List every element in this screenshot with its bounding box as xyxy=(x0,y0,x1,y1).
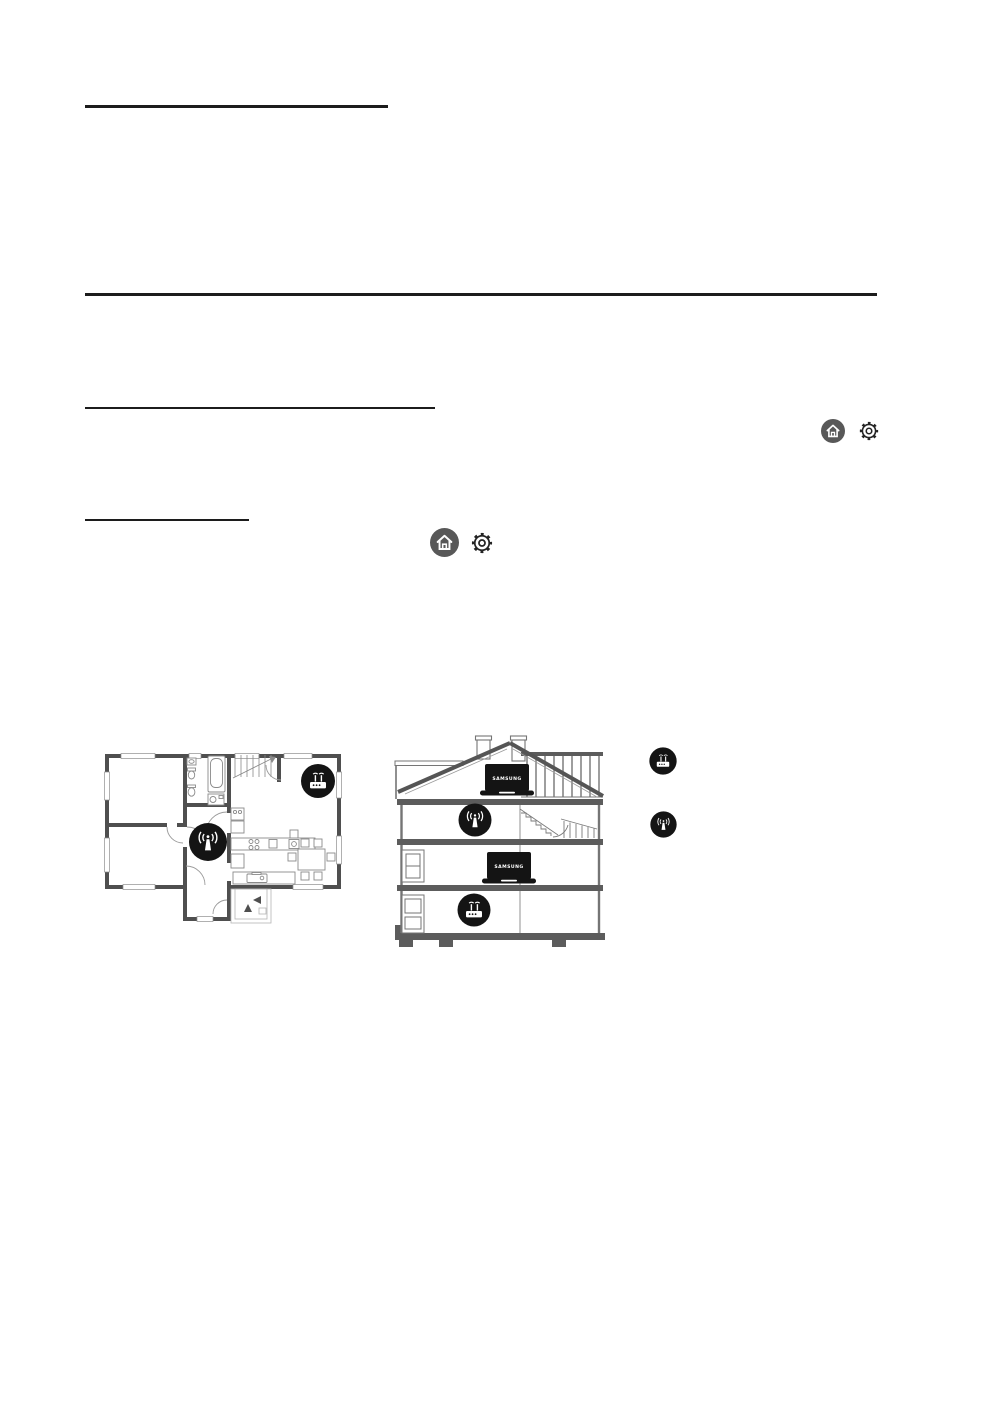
laptop-first-floor: SAMSUNG xyxy=(482,852,536,884)
wifi-extender-icon xyxy=(189,823,227,861)
stairs xyxy=(520,809,597,838)
laptop-screen-label: SAMSUNG xyxy=(492,776,521,782)
legend-wifi-extender-icon xyxy=(650,811,677,838)
heading-underline-2 xyxy=(85,407,435,409)
home-icon xyxy=(430,528,459,557)
house-cross-section-figure: SAMSUNG SAMSUNG xyxy=(393,733,607,948)
laptop-attic: SAMSUNG xyxy=(480,764,534,796)
gear-icon xyxy=(471,532,493,554)
heading-underline-1 xyxy=(85,105,388,108)
home-icon xyxy=(821,419,845,443)
section-divider-rule xyxy=(85,293,877,296)
manual-page: SAMSUNG SAMSUNG xyxy=(0,0,1001,1421)
heading-underline-3 xyxy=(85,519,249,521)
wifi-router-icon xyxy=(301,764,335,798)
floor-plan-figure xyxy=(101,750,345,925)
legend-wifi-router-icon xyxy=(649,747,677,775)
floor-plan-porch xyxy=(231,889,271,923)
cross-section-openings xyxy=(402,850,424,933)
wifi-extender-icon xyxy=(459,804,492,837)
wifi-router-icon xyxy=(458,894,491,927)
gear-icon xyxy=(859,421,879,441)
laptop-screen-label: SAMSUNG xyxy=(494,864,523,870)
